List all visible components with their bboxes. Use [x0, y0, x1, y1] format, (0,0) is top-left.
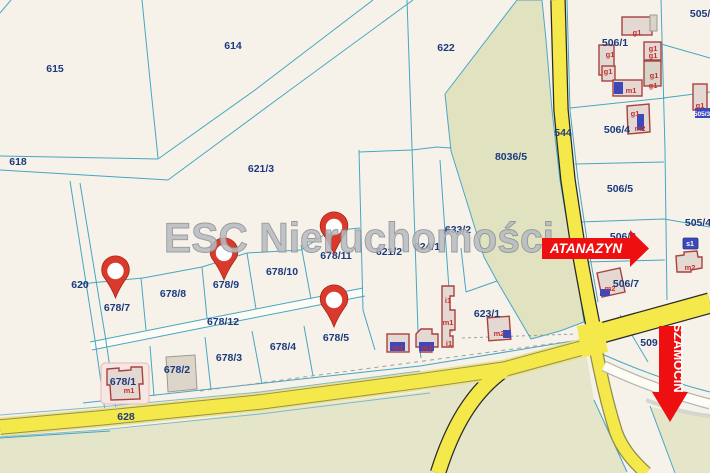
svg-text:505/3: 505/3	[694, 111, 710, 118]
svg-text:g1: g1	[631, 109, 640, 118]
svg-text:623/1: 623/1	[474, 308, 500, 320]
svg-text:m1: m1	[443, 318, 454, 327]
svg-text:s1: s1	[686, 241, 694, 248]
svg-text:678/12: 678/12	[207, 316, 239, 328]
svg-text:678/4: 678/4	[270, 341, 296, 353]
svg-text:ATANAZYN: ATANAZYN	[549, 241, 622, 256]
svg-text:678/10: 678/10	[266, 266, 298, 278]
svg-text:m2: m2	[494, 329, 505, 338]
svg-text:g1: g1	[633, 28, 642, 37]
svg-text:678/5: 678/5	[323, 332, 349, 344]
svg-text:g1: g1	[650, 71, 659, 80]
svg-text:8036/5: 8036/5	[495, 151, 527, 163]
svg-text:g1: g1	[696, 101, 705, 110]
svg-text:506/4: 506/4	[604, 124, 630, 136]
svg-text:m1: m1	[626, 86, 637, 95]
svg-text:m1: m1	[393, 343, 404, 352]
svg-text:g1: g1	[649, 51, 658, 60]
svg-text:620: 620	[71, 279, 89, 291]
svg-text:ESC Nieruchomości: ESC Nieruchomości	[164, 214, 554, 261]
svg-text:678/8: 678/8	[160, 288, 186, 300]
svg-text:614: 614	[224, 40, 242, 52]
svg-text:505/4: 505/4	[685, 217, 710, 229]
svg-text:m2: m2	[605, 284, 616, 293]
svg-text:506/7: 506/7	[613, 278, 639, 290]
svg-text:m2: m2	[635, 124, 646, 133]
svg-text:506/1: 506/1	[602, 37, 628, 49]
svg-text:m1: m1	[422, 343, 433, 352]
svg-text:i1: i1	[445, 296, 451, 305]
svg-text:g1: g1	[649, 81, 658, 90]
svg-text:509: 509	[640, 337, 658, 349]
svg-text:678/7: 678/7	[104, 302, 130, 314]
svg-text:g1: g1	[604, 67, 613, 76]
svg-text:678/9: 678/9	[213, 279, 239, 291]
svg-text:678/3: 678/3	[216, 352, 242, 364]
svg-text:m1: m1	[124, 386, 135, 395]
svg-text:544: 544	[554, 127, 572, 139]
svg-text:615: 615	[46, 63, 64, 75]
svg-text:505/2: 505/2	[690, 8, 710, 20]
svg-text:g1: g1	[606, 50, 615, 59]
svg-text:622: 622	[437, 42, 455, 54]
svg-text:i1: i1	[446, 339, 452, 348]
svg-text:621/3: 621/3	[248, 163, 274, 175]
svg-text:678/2: 678/2	[164, 364, 190, 376]
svg-text:506/5: 506/5	[607, 183, 633, 195]
svg-text:618: 618	[9, 156, 27, 168]
svg-text:SZAMOCIN: SZAMOCIN	[671, 323, 686, 392]
svg-text:m2: m2	[685, 263, 696, 272]
svg-text:628: 628	[117, 411, 135, 423]
